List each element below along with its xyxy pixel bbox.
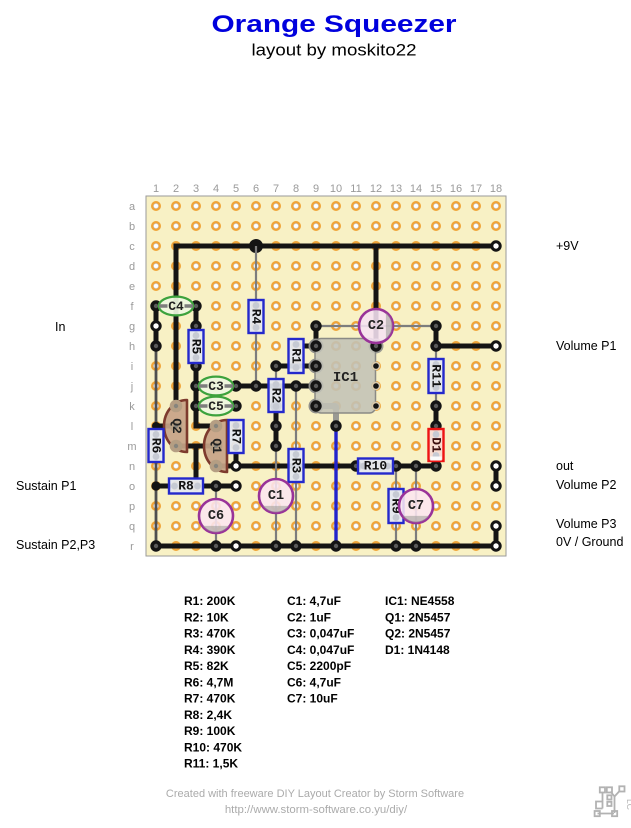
svg-text:R8: R8 <box>178 479 194 494</box>
svg-text:R2: R2 <box>269 388 284 404</box>
svg-text:IC1: NE4558: IC1: NE4558 <box>385 594 455 608</box>
svg-text:R5: R5 <box>189 339 204 355</box>
svg-text:18: 18 <box>490 183 502 195</box>
svg-text:C4: C4 <box>168 299 184 314</box>
svg-text:Created with freeware DIY Layo: Created with freeware DIY Layout Creator… <box>166 788 464 800</box>
svg-text:R7: 470K: R7: 470K <box>184 692 236 706</box>
svg-text:C6: C6 <box>208 509 224 524</box>
svg-text:R4: 390K: R4: 390K <box>184 643 236 657</box>
svg-text:R10: R10 <box>364 459 388 474</box>
svg-text:q: q <box>129 521 135 533</box>
svg-text:16: 16 <box>450 183 462 195</box>
svg-text:r: r <box>130 541 134 553</box>
svg-text:C5: C5 <box>208 399 224 414</box>
svg-text:a: a <box>129 201 136 213</box>
svg-text:C2: C2 <box>368 319 384 334</box>
svg-text:R1: 200K: R1: 200K <box>184 594 236 608</box>
svg-text:In: In <box>55 320 65 334</box>
svg-text:http://www.storm-software.co.y: http://www.storm-software.co.yu/diy/ <box>225 804 408 816</box>
svg-text:R3: 470K: R3: 470K <box>184 627 236 641</box>
svg-text:10: 10 <box>330 183 342 195</box>
svg-text:R8: 2,4K: R8: 2,4K <box>184 708 232 722</box>
svg-text:Orange Squeezer: Orange Squeezer <box>212 11 457 38</box>
svg-text:4: 4 <box>213 183 219 195</box>
svg-text:0V / Ground: 0V / Ground <box>556 535 623 549</box>
svg-text:14: 14 <box>410 183 422 195</box>
svg-text:C1: C1 <box>268 489 284 504</box>
svg-text:C4: 0,047uF: C4: 0,047uF <box>287 643 354 657</box>
svg-text:g: g <box>129 321 135 333</box>
svg-text:8: 8 <box>293 183 299 195</box>
svg-text:1: 1 <box>153 183 159 195</box>
svg-text:e: e <box>129 281 135 293</box>
svg-text:R3: R3 <box>289 458 304 474</box>
svg-text:Q1: Q1 <box>209 438 224 454</box>
svg-text:LC: LC <box>625 799 631 810</box>
svg-text:6: 6 <box>253 183 259 195</box>
svg-text:3: 3 <box>193 183 199 195</box>
svg-text:R9: 100K: R9: 100K <box>184 724 236 738</box>
svg-text:Sustain P1: Sustain P1 <box>16 479 77 493</box>
svg-text:5: 5 <box>233 183 239 195</box>
svg-text:17: 17 <box>470 183 482 195</box>
svg-text:Volume P3: Volume P3 <box>556 517 617 531</box>
svg-text:b: b <box>129 221 135 233</box>
svg-text:Q2: 2N5457: Q2: 2N5457 <box>385 627 451 641</box>
svg-text:Q2: Q2 <box>169 418 184 434</box>
svg-text:h: h <box>129 341 135 353</box>
svg-text:C3: 0,047uF: C3: 0,047uF <box>287 627 354 641</box>
svg-text:R1: R1 <box>289 348 304 364</box>
svg-text:R10: 470K: R10: 470K <box>184 740 242 754</box>
svg-text:C2: 1uF: C2: 1uF <box>287 610 331 624</box>
svg-text:2: 2 <box>173 183 179 195</box>
svg-text:R2: 10K: R2: 10K <box>184 610 229 624</box>
svg-text:out: out <box>556 459 574 473</box>
svg-text:+9V: +9V <box>556 239 579 253</box>
svg-text:Volume P1: Volume P1 <box>556 339 617 353</box>
svg-text:o: o <box>129 481 135 493</box>
svg-text:C5: 2200pF: C5: 2200pF <box>287 659 351 673</box>
svg-text:R6: 4,7M: R6: 4,7M <box>184 675 233 689</box>
svg-text:j: j <box>130 381 133 393</box>
svg-text:Volume P2: Volume P2 <box>556 478 617 492</box>
svg-text:R6: R6 <box>149 438 164 454</box>
svg-text:i: i <box>131 361 133 373</box>
svg-text:C6: 4,7uF: C6: 4,7uF <box>287 675 341 689</box>
svg-text:R11: R11 <box>429 364 444 388</box>
svg-text:C7: 10uF: C7: 10uF <box>287 692 338 706</box>
svg-text:12: 12 <box>370 183 382 195</box>
svg-text:m: m <box>127 441 136 453</box>
svg-text:layout by moskito22: layout by moskito22 <box>252 41 417 60</box>
svg-text:R11: 1,5K: R11: 1,5K <box>184 757 238 771</box>
svg-text:D1: 1N4148: D1: 1N4148 <box>385 643 450 657</box>
svg-text:D1: D1 <box>429 437 444 453</box>
svg-text:c: c <box>129 241 135 253</box>
svg-text:C3: C3 <box>208 379 224 394</box>
svg-text:11: 11 <box>350 183 361 195</box>
svg-text:C1: 4,7uF: C1: 4,7uF <box>287 594 341 608</box>
svg-text:IC1: IC1 <box>333 370 358 386</box>
svg-text:p: p <box>129 501 135 513</box>
svg-text:15: 15 <box>430 183 442 195</box>
svg-text:l: l <box>131 421 133 433</box>
svg-text:d: d <box>129 261 135 273</box>
svg-text:n: n <box>129 461 135 473</box>
svg-text:R5: 82K: R5: 82K <box>184 659 229 673</box>
svg-text:9: 9 <box>313 183 319 195</box>
svg-text:Q1: 2N5457: Q1: 2N5457 <box>385 610 451 624</box>
svg-text:R7: R7 <box>229 429 244 445</box>
svg-text:k: k <box>129 401 135 413</box>
svg-text:13: 13 <box>390 183 402 195</box>
svg-text:C7: C7 <box>408 499 424 514</box>
svg-text:R4: R4 <box>249 309 264 325</box>
svg-text:Sustain P2,P3: Sustain P2,P3 <box>16 538 95 552</box>
svg-text:7: 7 <box>273 183 279 195</box>
